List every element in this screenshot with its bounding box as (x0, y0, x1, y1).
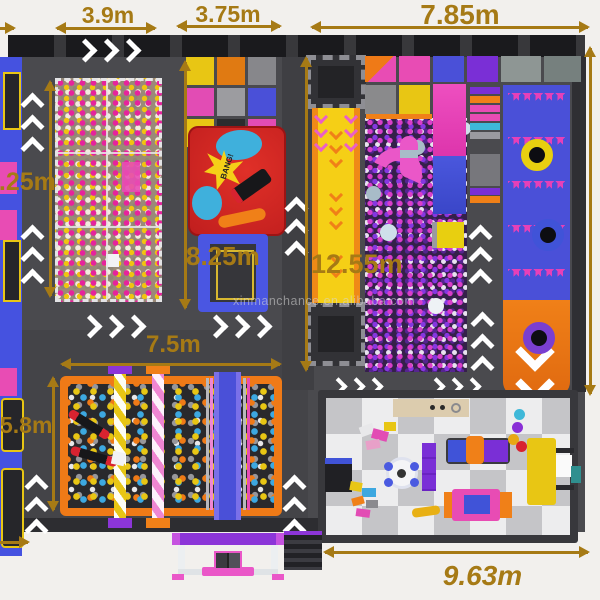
dimension-arrow (62, 363, 280, 366)
toy-ball (514, 409, 525, 420)
pit-edge-rail (366, 114, 432, 119)
chevron-arrows-decal (208, 318, 269, 335)
chevron-icon (20, 246, 44, 270)
ball-pit-grid (55, 78, 162, 302)
zigzag-stripe (508, 93, 565, 104)
ladder-step (470, 96, 500, 103)
seesaw-pad (448, 440, 466, 462)
ball-pit-grid-line (57, 226, 160, 228)
colored-mat-square (217, 57, 245, 85)
slide-handle (556, 485, 574, 490)
chevron-arrows-decal (77, 42, 138, 59)
toddler-bench-top (325, 458, 352, 464)
support-pole (210, 378, 213, 510)
track-chevrons-icon (316, 112, 326, 150)
chevron-icon (20, 136, 44, 160)
dimension-arrow (325, 551, 588, 554)
colored-mat-square (186, 88, 214, 116)
ball-pit-grid-line (106, 80, 108, 300)
track-chevrons-icon (331, 128, 341, 166)
play-table-rail (444, 492, 452, 518)
dimension-arrow (52, 378, 55, 510)
chevron-icon (468, 246, 492, 270)
floor-plan-render: BANG! (0, 0, 600, 600)
chevron-icon (20, 224, 44, 248)
table-petal (410, 462, 419, 471)
beam-cap (108, 518, 132, 528)
dimension-label: 9.63m (425, 562, 540, 590)
graffiti-mat: BANG! (188, 126, 286, 236)
chevron-arrows-decal (286, 478, 303, 539)
desk-bar (172, 533, 284, 545)
chevron-icon (468, 224, 492, 248)
ladder-step (470, 87, 500, 94)
chevron-icon (100, 314, 124, 338)
chevron-arrows-decal (82, 318, 143, 335)
chevron-icon (204, 314, 228, 338)
dimension-label: 3.75m (182, 3, 274, 26)
colored-mat-square (365, 85, 396, 114)
scaffold-bed (318, 316, 354, 352)
corner-arrow-fragment (0, 27, 14, 30)
colored-mat-square (399, 56, 430, 82)
table-petal (384, 478, 393, 487)
chevron-icon (314, 110, 328, 124)
chevron-icon (329, 202, 343, 216)
beam-cap (146, 518, 170, 528)
colored-mat-square (248, 88, 276, 116)
donut-wall (503, 85, 570, 301)
seesaw-roller (466, 436, 484, 464)
wall-trampoline (3, 240, 21, 302)
zigzag-stripe (508, 181, 565, 192)
lego-block (384, 422, 396, 431)
chevron-icon (329, 188, 343, 202)
colored-mat-square (399, 85, 430, 114)
colored-mat-square (467, 56, 498, 82)
colored-mat-square (501, 56, 541, 82)
support-pole (206, 378, 209, 510)
dimension-label: 3.9m (73, 4, 143, 27)
zigzag-stripe (508, 269, 565, 280)
chevron-icon (470, 333, 494, 357)
splash-shape (217, 207, 266, 229)
step-block (422, 443, 436, 491)
stove-burner-icon (440, 405, 445, 410)
dimension-label: 7.5m (146, 333, 201, 357)
chevron-icon (20, 268, 44, 292)
support-pole (243, 378, 246, 510)
sink-icon (451, 403, 461, 413)
play-table-rail (500, 492, 512, 518)
chevron-arrows-decal (288, 200, 305, 261)
lego-block (349, 481, 362, 492)
colored-mat-square (217, 88, 245, 116)
chevron-icon (470, 311, 494, 335)
scaffold-bed (318, 66, 354, 98)
donut-ring (532, 219, 564, 251)
slide-handle (556, 448, 574, 453)
dimension-label: 7.85m (400, 1, 520, 29)
chevron-icon (20, 114, 44, 138)
chevron-icon (329, 126, 343, 140)
play-slide (527, 438, 556, 505)
toy-ball (512, 422, 523, 433)
desk-foot (172, 574, 184, 580)
chevron-icon (117, 38, 141, 62)
chevron-icon (78, 314, 102, 338)
tube-cap (400, 150, 418, 158)
toddler-bench (325, 461, 352, 492)
ladder-step (470, 132, 500, 139)
chevron-icon (344, 138, 358, 152)
chevron-icon (20, 92, 44, 116)
chevron-icon (344, 110, 358, 124)
dimension-arrow (184, 62, 187, 308)
splash-shape (214, 126, 265, 164)
table-center (397, 469, 406, 478)
chevron-icon (73, 38, 97, 62)
stove-burner-icon (430, 405, 435, 410)
chevron-arrows-decal (24, 96, 41, 157)
chevron-arrows-decal (28, 478, 45, 539)
landing-mat (432, 222, 464, 248)
watermark: xinmanchance.en.alibaba.com (233, 294, 415, 308)
chevron-icon (248, 314, 272, 338)
lego-block (366, 500, 378, 508)
chevron-arrows-decal (472, 228, 489, 289)
toy-ball (516, 441, 527, 452)
track-chevrons-icon (331, 190, 341, 228)
corner-arrow-fragment (0, 541, 28, 544)
play-table-top (464, 495, 490, 514)
ladder-step (470, 105, 500, 112)
chevron-icon (226, 314, 250, 338)
table-petal (384, 462, 393, 471)
dimension-label: 5.8m (0, 414, 52, 437)
chevron-icon (24, 474, 48, 498)
lego-block (362, 488, 376, 497)
chevron-icon (329, 140, 343, 154)
dimension-label: 8.25m (0, 170, 56, 195)
splash-shape (192, 186, 222, 220)
ladder-step (470, 188, 500, 195)
chevron-icon (282, 496, 306, 520)
chevron-icon (122, 314, 146, 338)
drop-slide-pink (433, 84, 466, 156)
seesaw-pad (484, 440, 508, 462)
colored-mat-square (544, 56, 581, 82)
desk-foot (272, 574, 284, 580)
track-chevrons-icon (346, 112, 356, 150)
soft-ball (380, 224, 397, 241)
tube-cap (366, 186, 381, 201)
slide-panel (556, 455, 572, 477)
chevron-icon (344, 124, 358, 138)
dimension-label: 8.25m (186, 243, 260, 269)
chevron-icon (314, 138, 328, 152)
ladder-step (470, 123, 500, 130)
desk-book (214, 551, 242, 570)
dimension-label: 12.55m (311, 251, 403, 278)
step-block (470, 154, 500, 186)
colored-mat-square (248, 57, 276, 85)
toy-mat (571, 466, 581, 483)
pink-pad (0, 368, 17, 396)
chevron-icon (329, 154, 343, 168)
chevron-icon (95, 38, 119, 62)
chevron-icon (468, 268, 492, 292)
chevron-icon (329, 216, 343, 230)
soft-ball (428, 298, 444, 314)
colored-mat-square (365, 56, 396, 82)
pink-pad (0, 210, 17, 240)
stair-block (284, 531, 322, 570)
balance-beam (114, 370, 126, 522)
dimension-arrow (589, 48, 592, 394)
reception-desk (172, 533, 284, 580)
right-wall (572, 56, 586, 392)
kart-graphic (229, 167, 273, 204)
donut-ring (521, 139, 553, 171)
balance-beam (152, 370, 164, 522)
table-petal (410, 478, 419, 487)
foam-cube (111, 451, 126, 466)
support-pole (247, 378, 250, 510)
ladder-step (470, 196, 500, 203)
wall-trampoline (3, 72, 21, 130)
chevron-icon (470, 355, 494, 379)
colored-mat-square (433, 56, 464, 82)
donut-ring (523, 322, 555, 354)
ninja-strip (214, 372, 241, 520)
chevron-icon (24, 496, 48, 520)
chevron-arrows-decal (24, 228, 41, 289)
chevron-arrows-decal (474, 315, 491, 376)
drop-slide-blue (433, 156, 466, 214)
ball-pit-grid-line (57, 152, 160, 154)
dimension-arrow (305, 58, 308, 370)
ladder-step (470, 114, 500, 121)
chevron-icon (314, 124, 328, 138)
chevron-icon (282, 474, 306, 498)
